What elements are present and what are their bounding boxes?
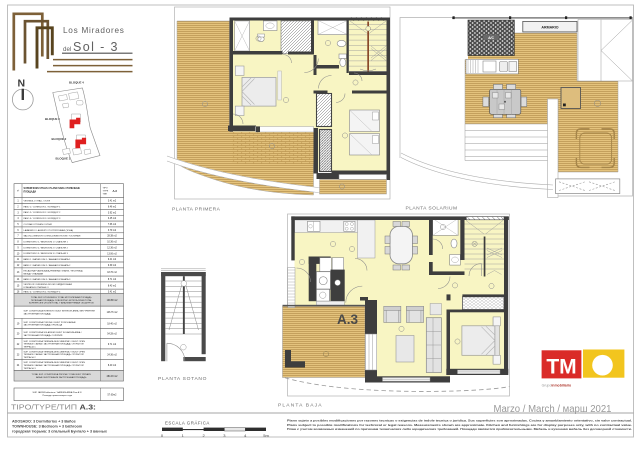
svg-text:18.40 m2: 18.40 m2	[107, 323, 117, 325]
svg-text:BLOQUE 4: BLOQUE 4	[69, 81, 84, 85]
svg-text:ТИП: ТИП	[103, 193, 108, 195]
svg-text:N: N	[18, 78, 26, 90]
svg-text:9.41 m2: 9.41 m2	[108, 259, 117, 261]
svg-text:SUPERFICIES UTILES/TOTAL Y АНА: SUPERFICIES UTILES/TOTAL Y АНАЛИЗИРУЕМАЯ…	[29, 302, 94, 305]
svg-text:ТЕРРАСЫ 1: ТЕРРАСЫ 1	[24, 346, 37, 349]
svg-text:PLANTA PRIMERA: PLANTA PRIMERA	[172, 207, 221, 213]
svg-text:PASO 2 / CORRIDOR 2 / КОРИДОР: PASO 2 / CORRIDOR 2 / КОРИДОР 2	[24, 211, 62, 214]
svg-text:КОМНАТА В СПАЛЬНЕ 3: КОМНАТА В СПАЛЬНЕ 3	[24, 286, 50, 289]
svg-text:ESCALA GRÁFICA: ESCALA GRÁFICA	[165, 421, 210, 426]
svg-text:ESCALERA PLANTA BAJA-PRIMERA /: ESCALERA PLANTA BAJA-PRIMERA / STAIRS / …	[24, 269, 84, 272]
svg-text:SUP. CONSTRUIDA INTERIOR / BUI: SUP. CONSTRUIDA INTERIOR / BUILT INTERIO…	[24, 310, 96, 313]
svg-text:SUP. CONSTRUIDA PORCHE / BUILT: SUP. CONSTRUIDA PORCHE / BUILT PORCH ARE…	[24, 321, 77, 324]
svg-text:TOTAL SUP. UTIL/USEFUL TOTAL M: TOTAL SUP. UTIL/USEFUL TOTAL M2 ПОЛЕЗНАЯ…	[31, 296, 92, 299]
svg-text:AREA / ВНУТРЕННИЕ ЗАСТРОЕННАЯ: AREA / ВНУТРЕННИЕ ЗАСТРОЕННАЯ ПЛОЩАДЬ	[36, 376, 87, 379]
svg-text:городская тюрьма: 3 спальный Б: городская тюрьма: 3 спальный Бунгало + 3…	[12, 430, 108, 434]
svg-text:BLOQUE 2: BLOQUE 2	[52, 137, 67, 141]
svg-text:LAVADERO / LAUNDRY / ПОСТИРОЧН: LAVADERO / LAUNDRY / ПОСТИРОЧНАЯ (ЗОНА)	[24, 229, 74, 232]
svg-text:SUP. CONSTRUIDA TERRAZA DESCUB: SUP. CONSTRUIDA TERRAZA DESCUBIERTA 2 / …	[24, 350, 86, 353]
svg-text:PASO 1 / CORRIDOR 1 / КОРИДОР: PASO 1 / CORRIDOR 1 / КОРИДОР 1	[24, 205, 62, 208]
svg-text:BLOQUE 1: BLOQUE 1	[56, 157, 71, 161]
svg-text:TIPO/TYPE/ТИП A.3:: TIPO/TYPE/ТИП A.3:	[11, 403, 96, 412]
svg-text:Площадь прилегающего сада: Площадь прилегающего сада	[42, 395, 72, 397]
svg-text:ТЕРРАСЫ 2: ТЕРРАСЫ 2	[24, 356, 37, 359]
svg-text:13.06 m2: 13.06 m2	[107, 253, 117, 255]
svg-text:План с учетом возможных измене: План с учетом возможных изменений по при…	[287, 427, 632, 431]
svg-text:5m: 5m	[263, 433, 269, 438]
svg-text:PASO 4 / CORRIDOR 4 / КОРИДОР: PASO 4 / CORRIDOR 4 / КОРИДОР 4	[24, 290, 62, 293]
svg-text:7.66 m2: 7.66 m2	[108, 224, 117, 226]
svg-text:ЗАСТРОЕННАЯ ПЛОЩАДЬ СОЛЯРИЙ: ЗАСТРОЕННАЯ ПЛОЩАДЬ СОЛЯРИЙ	[24, 334, 63, 337]
svg-text:SALON-COMEDOR / LIVING-DINING: SALON-COMEDOR / LIVING-DINING ROOM / ГОС…	[24, 235, 81, 238]
svg-text:ADOSADO: 3 Dormitorios + 3 Bañ: ADOSADO: 3 Dormitorios + 3 Baños	[12, 420, 76, 424]
svg-text:3.41 m2: 3.41 m2	[108, 201, 117, 203]
svg-text:ТЕРРАСЫ 3: ТЕРРАСЫ 3	[24, 367, 37, 370]
svg-text:SUP. CONSTRUIDA TERRAZA DESCUB: SUP. CONSTRUIDA TERRAZA DESCUBIERTA 1 / …	[24, 340, 86, 343]
svg-text:ПЛОЩАДИ: ПЛОЩАДИ	[24, 191, 37, 194]
svg-text:A.3: A.3	[337, 312, 359, 327]
svg-text:TYPE: TYPE	[103, 190, 109, 192]
svg-text:BAÑO 1 / BATHROOM 1 / ВАННАЯ К: BAÑO 1 / BATHROOM 1 / ВАННАЯ КОМНАТА 1	[24, 258, 72, 261]
svg-text:TOWNHOUSE: 3 Bedroom + 3 bathr: TOWNHOUSE: 3 Bedroom + 3 bathroom	[12, 425, 83, 429]
svg-text:TERRACE 1 AREA / ЗАСТРОЕННАЯ П: TERRACE 1 AREA / ЗАСТРОЕННАЯ ПЛОЩАДЬ ОТК…	[24, 343, 85, 346]
svg-text:ПОЛЕЗНАЯ ПЛОЩАДЬ СОВОКУПНО ИСП: ПОЛЕЗНАЯ ПЛОЩАДЬ СОВОКУПНО ИСПОЛЬЗУЕМ./T…	[31, 299, 93, 302]
svg-text:8.43 m2: 8.43 m2	[108, 286, 117, 288]
svg-text:284.03 m2: 284.03 m2	[107, 376, 119, 378]
svg-text:109.88 m2: 109.88 m2	[107, 300, 119, 302]
svg-text:6.46 m2: 6.46 m2	[108, 206, 117, 208]
svg-text:TERRACE 3 AREA / ЗАСТРОЕННАЯ П: TERRACE 3 AREA / ЗАСТРОЕННАЯ ПЛОЩАДЬ ОТК…	[24, 364, 85, 367]
svg-text:VESTIBULO / HALL / ХОЛЛ: VESTIBULO / HALL / ХОЛЛ	[24, 200, 51, 203]
svg-text:10.36 m2: 10.36 m2	[107, 242, 117, 244]
svg-text:ARMARIO: ARMARIO	[541, 25, 558, 29]
svg-text:TERRACE 2 AREA / ЗАСТРОЕННАЯ П: TERRACE 2 AREA / ЗАСТРОЕННАЯ ПЛОЩАДЬ ОТК…	[24, 353, 85, 356]
svg-text:18.76 m2: 18.76 m2	[107, 272, 117, 274]
svg-text:9.71 m2: 9.71 m2	[108, 344, 117, 346]
svg-text:ЗАСТРОЕННАЯ ПЛОЩАДЬ КРЫЛЬЦА: ЗАСТРОЕННАЯ ПЛОЩАДЬ КРЫЛЬЦА	[24, 324, 63, 327]
svg-text:3.45 m2: 3.45 m2	[108, 218, 117, 220]
svg-text:BLOQUE 3: BLOQUE 3	[45, 117, 60, 121]
svg-text:146.76 m2: 146.76 m2	[107, 312, 119, 314]
svg-text:SUP. CONSTRUIDA SOLARIUM / BUI: SUP. CONSTRUIDA SOLARIUM / BUILT SOLARIU…	[24, 331, 82, 334]
svg-text:3.41 m2: 3.41 m2	[108, 291, 117, 293]
svg-text:8.71 m2: 8.71 m2	[108, 279, 117, 281]
svg-text:3.79 m2: 3.79 m2	[108, 230, 117, 232]
svg-text:Grupoinmobiliario: Grupoinmobiliario	[542, 383, 572, 387]
svg-text:ЗАСТРОЕННАЯ ПЛОЩАДЬ: ЗАСТРОЕННАЯ ПЛОЩАДЬ	[24, 313, 52, 316]
svg-text:57.60m2: 57.60m2	[108, 394, 118, 396]
svg-text:DORMITORIO 2 / BEDROOM 2 / СПА: DORMITORIO 2 / BEDROOM 2 / СПАЛЬНЯ 2	[24, 246, 69, 249]
svg-text:PASO 3 / CORRIDOR 3 / КОРИДОР: PASO 3 / CORRIDOR 3 / КОРИДОР 3	[24, 217, 62, 220]
svg-text:A/C: A/C	[488, 36, 494, 40]
svg-text:МЕЖДУ ЭТАЖАМИ: МЕЖДУ ЭТАЖАМИ	[24, 272, 44, 275]
svg-text:PLANTA SOTANO: PLANTA SOTANO	[158, 376, 207, 382]
svg-text:VESTIDOR / DRESSING ROOM / ГАР: VESTIDOR / DRESSING ROOM / ГАРДЕРОБНАЯ	[24, 283, 73, 286]
svg-text:SUP. JARDIN delantero / GARDEN: SUP. JARDIN delantero / GARDEN AREA Plan…	[33, 391, 83, 394]
svg-text:28.38 m2: 28.38 m2	[107, 236, 117, 238]
svg-text:PLANTA BAJA: PLANTA BAJA	[278, 403, 323, 409]
svg-text:COCINA / KITCHEN / КУХНЯ: COCINA / KITCHEN / КУХНЯ	[24, 223, 53, 226]
svg-text:TIPO: TIPO	[103, 187, 108, 189]
svg-text:Marzo / March / марш 2021: Marzo / March / марш 2021	[494, 404, 612, 415]
svg-text:24.36 m2: 24.36 m2	[107, 354, 117, 356]
svg-text:SUP. CONSTRUIDA TERRAZA DESCUB: SUP. CONSTRUIDA TERRAZA DESCUBIERTA 3 / …	[24, 361, 86, 364]
svg-text:BAÑO 2 / BATHROOM 2 / ВАННАЯ К: BAÑO 2 / BATHROOM 2 / ВАННАЯ КОМНАТА 2	[24, 264, 72, 267]
svg-text:8.40 m2: 8.40 m2	[108, 365, 117, 367]
svg-text:3.92 m2: 3.92 m2	[108, 212, 117, 214]
svg-text:BAÑO 3 / BATHROOM 3 / ВАННАЯ К: BAÑO 3 / BATHROOM 3 / ВАННАЯ КОМНАТА 3	[24, 278, 72, 281]
svg-text:A.3: A.3	[113, 189, 118, 193]
svg-text:TM: TM	[546, 356, 576, 379]
svg-text:12.36 m2: 12.36 m2	[107, 247, 117, 249]
svg-text:DORMITORIO 1 / BEDROOM 1 / СПА: DORMITORIO 1 / BEDROOM 1 / СПАЛЬНЯ 1	[24, 240, 69, 243]
svg-text:Los Miradores: Los Miradores	[63, 26, 125, 35]
svg-text:PLANTA SOLARIUM: PLANTA SOLARIUM	[406, 206, 458, 212]
svg-text:54.28 m2: 54.28 m2	[107, 334, 117, 336]
svg-text:9.39 m2: 9.39 m2	[108, 265, 117, 267]
svg-text:del Sol - 3: del Sol - 3	[63, 40, 119, 54]
svg-text:DORMITORIO 3 / BEDROOM 3 / СПА: DORMITORIO 3 / BEDROOM 3 / СПАЛЬНЯ 3	[24, 252, 69, 255]
svg-text:TOTAL SUP. CONSTRUIDA PROPIA /: TOTAL SUP. CONSTRUIDA PROPIA / TOTAL BUI…	[32, 373, 92, 376]
svg-text:SUPERFICIES UTILES / PLANO SAR: SUPERFICIES UTILES / PLANO SARA / ПОЛЕЗН…	[24, 187, 81, 190]
